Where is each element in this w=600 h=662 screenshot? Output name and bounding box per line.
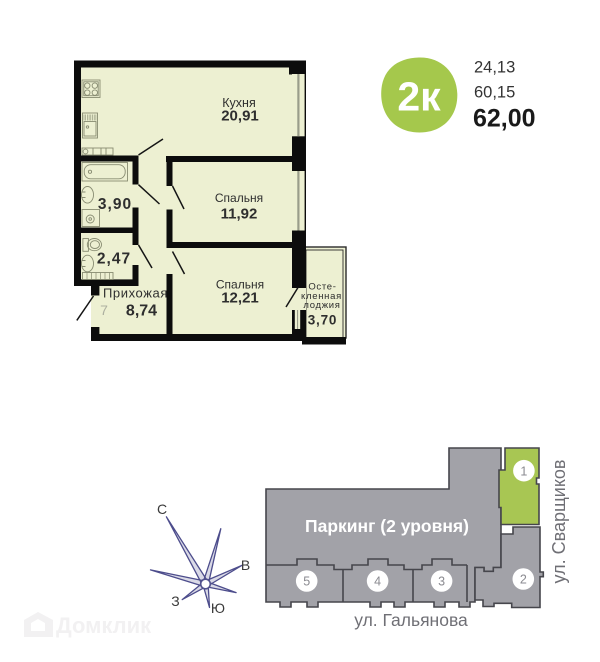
svg-text:ул. Сварщиков: ул. Сварщиков (549, 459, 569, 583)
svg-text:ул. Гальянова: ул. Гальянова (354, 610, 468, 630)
svg-text:Спальня: Спальня (215, 191, 263, 205)
svg-text:4: 4 (374, 575, 381, 589)
svg-text:20,91: 20,91 (221, 108, 259, 125)
svg-text:3,90: 3,90 (98, 196, 132, 213)
svg-text:В: В (241, 557, 250, 573)
svg-text:Домклик: Домклик (56, 613, 152, 638)
svg-text:2: 2 (520, 573, 527, 587)
svg-text:7: 7 (100, 302, 108, 318)
svg-text:З: З (171, 593, 179, 609)
svg-text:Ю: Ю (211, 600, 225, 616)
svg-text:8,74: 8,74 (126, 303, 157, 320)
svg-text:12,21: 12,21 (221, 290, 259, 307)
svg-text:С: С (157, 501, 167, 517)
svg-text:5: 5 (303, 575, 310, 589)
svg-text:Прихожая: Прихожая (103, 286, 168, 301)
svg-text:11,92: 11,92 (221, 206, 258, 223)
svg-text:2,47: 2,47 (97, 251, 131, 268)
svg-text:24,13: 24,13 (474, 59, 515, 77)
svg-text:2к: 2к (397, 74, 441, 120)
svg-text:3,70: 3,70 (308, 313, 337, 328)
svg-text:60,15: 60,15 (474, 84, 515, 102)
svg-text:лоджия: лоджия (303, 300, 340, 311)
svg-text:1: 1 (520, 465, 527, 479)
svg-text:3: 3 (438, 575, 445, 589)
svg-text:62,00: 62,00 (473, 105, 536, 133)
svg-text:Паркинг (2 уровня): Паркинг (2 уровня) (305, 516, 469, 536)
